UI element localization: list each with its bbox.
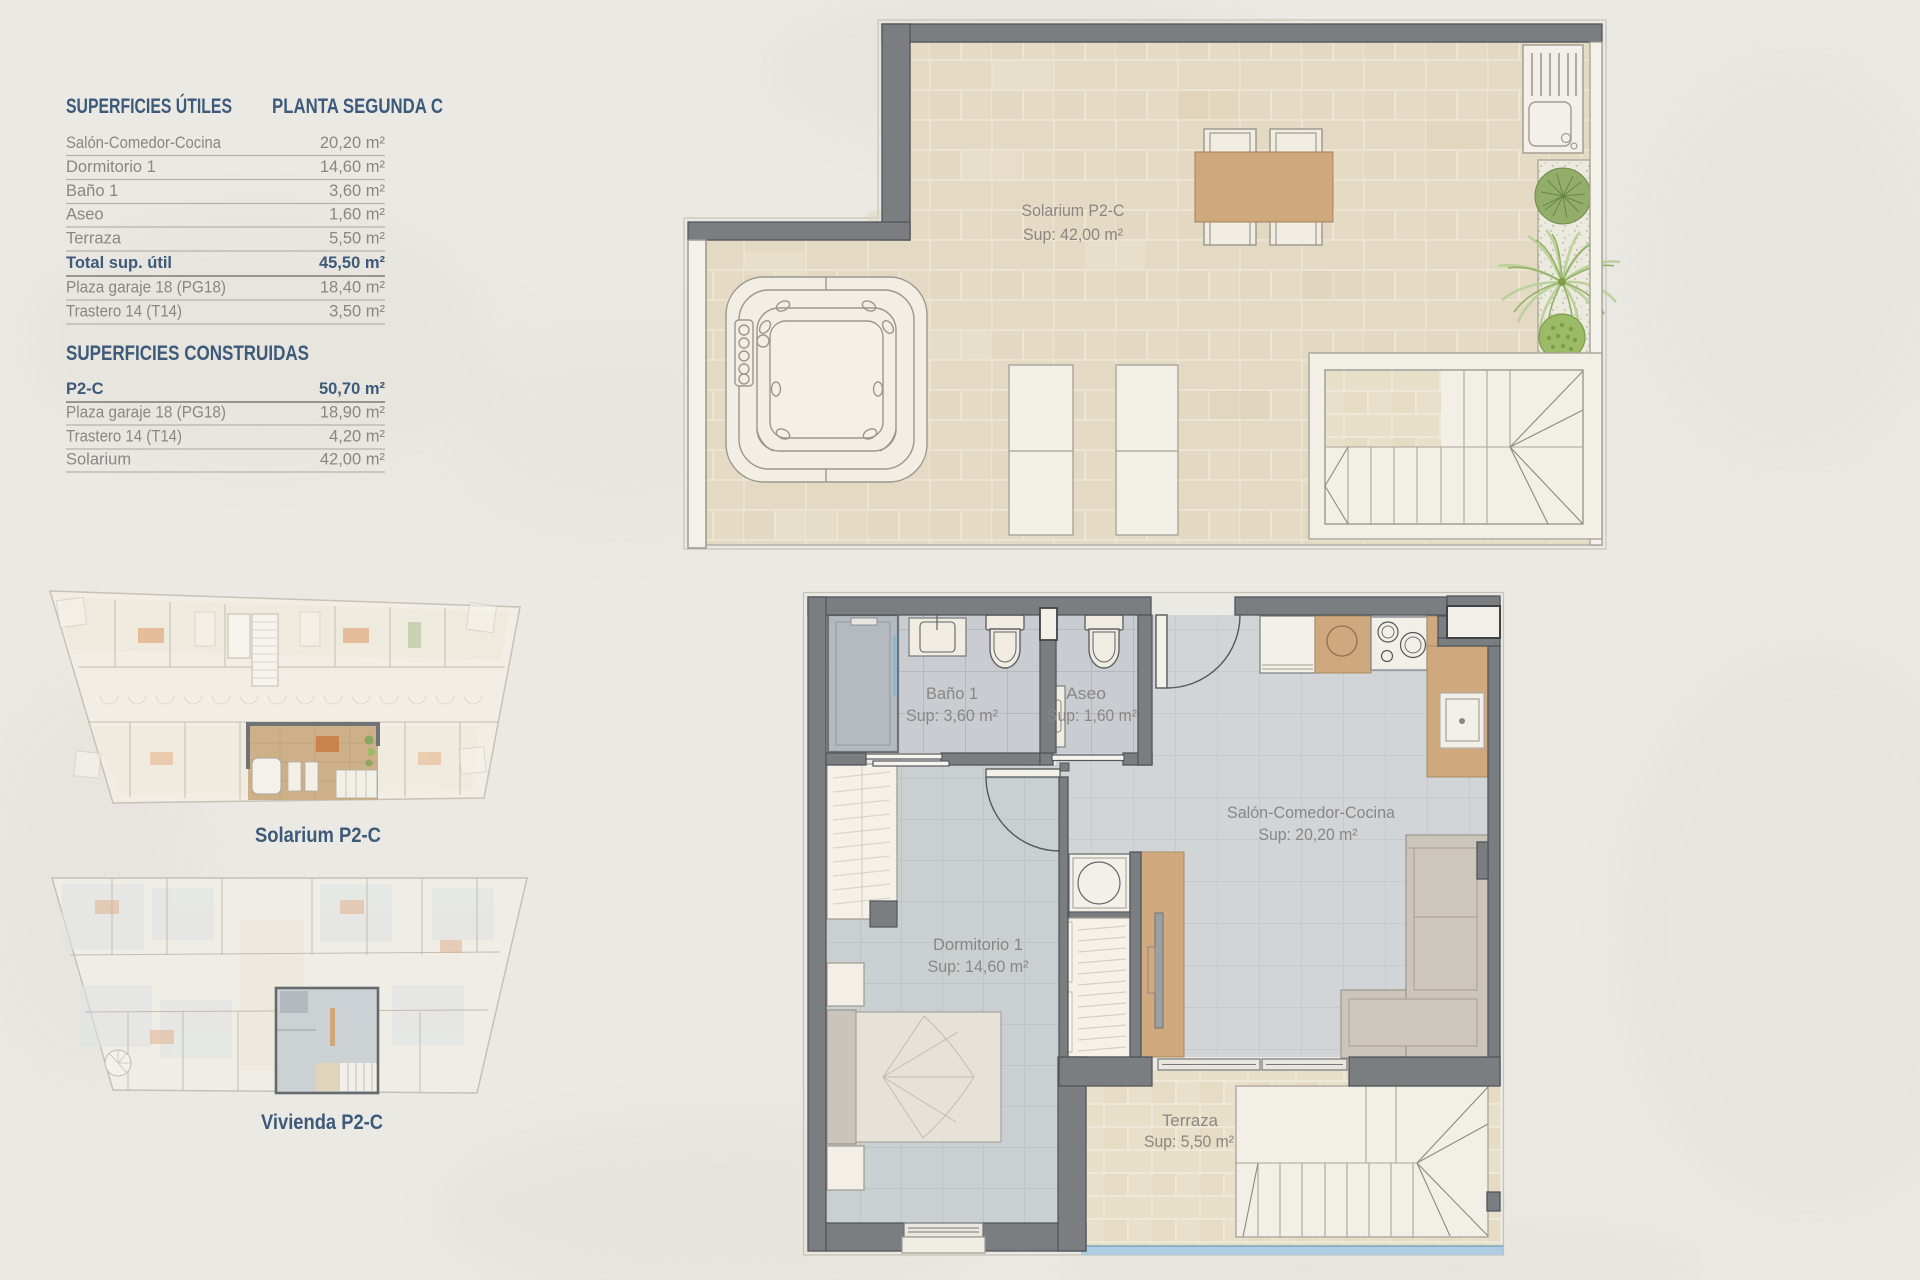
svg-text:3,50 m²: 3,50 m²: [329, 303, 385, 321]
svg-text:Sup: 14,60 m²: Sup: 14,60 m²: [928, 958, 1029, 976]
svg-text:Dormitorio 1: Dormitorio 1: [66, 158, 156, 176]
svg-text:42,00 m²: 42,00 m²: [320, 451, 386, 469]
svg-text:Sup: 5,50 m²: Sup: 5,50 m²: [1144, 1133, 1234, 1151]
svg-text:4,20 m²: 4,20 m²: [329, 428, 385, 446]
svg-text:Sup: 42,00 m²: Sup: 42,00 m²: [1023, 225, 1123, 244]
svg-text:Plaza garaje 18 (PG18): Plaza garaje 18 (PG18): [66, 279, 226, 297]
svg-text:Solarium: Solarium: [66, 451, 131, 469]
svg-text:Trastero 14 (T14): Trastero 14 (T14): [66, 303, 182, 321]
svg-text:Plaza garaje 18 (PG18): Plaza garaje 18 (PG18): [66, 404, 226, 422]
svg-text:Vivienda P2-C: Vivienda P2-C: [261, 1111, 383, 1134]
svg-text:PLANTA SEGUNDA C: PLANTA SEGUNDA C: [272, 95, 443, 118]
svg-text:P2-C: P2-C: [66, 380, 104, 398]
svg-text:Trastero 14 (T14): Trastero 14 (T14): [66, 428, 182, 446]
svg-text:Solarium P2-C: Solarium P2-C: [255, 824, 381, 847]
svg-text:SUPERFICIES ÚTILES: SUPERFICIES ÚTILES: [66, 94, 232, 118]
svg-text:Terraza: Terraza: [1162, 1112, 1219, 1130]
svg-text:5,50 m²: 5,50 m²: [329, 230, 385, 248]
svg-text:Salón-Comedor-Cocina: Salón-Comedor-Cocina: [1227, 804, 1396, 822]
svg-text:Baño 1: Baño 1: [926, 685, 978, 703]
svg-text:50,70 m²: 50,70 m²: [319, 380, 386, 398]
svg-text:Terraza: Terraza: [66, 230, 122, 248]
svg-text:Sup: 20,20 m²: Sup: 20,20 m²: [1259, 826, 1358, 844]
svg-text:Salón-Comedor-Cocina: Salón-Comedor-Cocina: [66, 134, 222, 152]
svg-text:45,50 m²: 45,50 m²: [319, 254, 386, 272]
svg-text:Sup: 1,60 m²: Sup: 1,60 m²: [1047, 707, 1137, 725]
svg-text:18,40 m²: 18,40 m²: [320, 279, 386, 297]
svg-text:18,90 m²: 18,90 m²: [320, 404, 386, 422]
svg-text:SUPERFICIES CONSTRUIDAS: SUPERFICIES CONSTRUIDAS: [66, 342, 309, 365]
svg-text:Sup: 3,60 m²: Sup: 3,60 m²: [906, 707, 998, 725]
svg-text:Total sup. útil: Total sup. útil: [66, 254, 172, 272]
svg-text:20,20 m²: 20,20 m²: [320, 134, 386, 152]
svg-text:14,60 m²: 14,60 m²: [320, 158, 386, 176]
svg-text:Baño 1: Baño 1: [66, 182, 118, 200]
svg-text:1,60 m²: 1,60 m²: [329, 206, 385, 224]
svg-text:Solarium P2-C: Solarium P2-C: [1022, 201, 1125, 220]
svg-text:3,60 m²: 3,60 m²: [329, 182, 385, 200]
svg-text:Aseo: Aseo: [1066, 685, 1106, 703]
svg-text:Aseo: Aseo: [66, 206, 104, 224]
svg-text:Dormitorio 1: Dormitorio 1: [933, 936, 1023, 954]
